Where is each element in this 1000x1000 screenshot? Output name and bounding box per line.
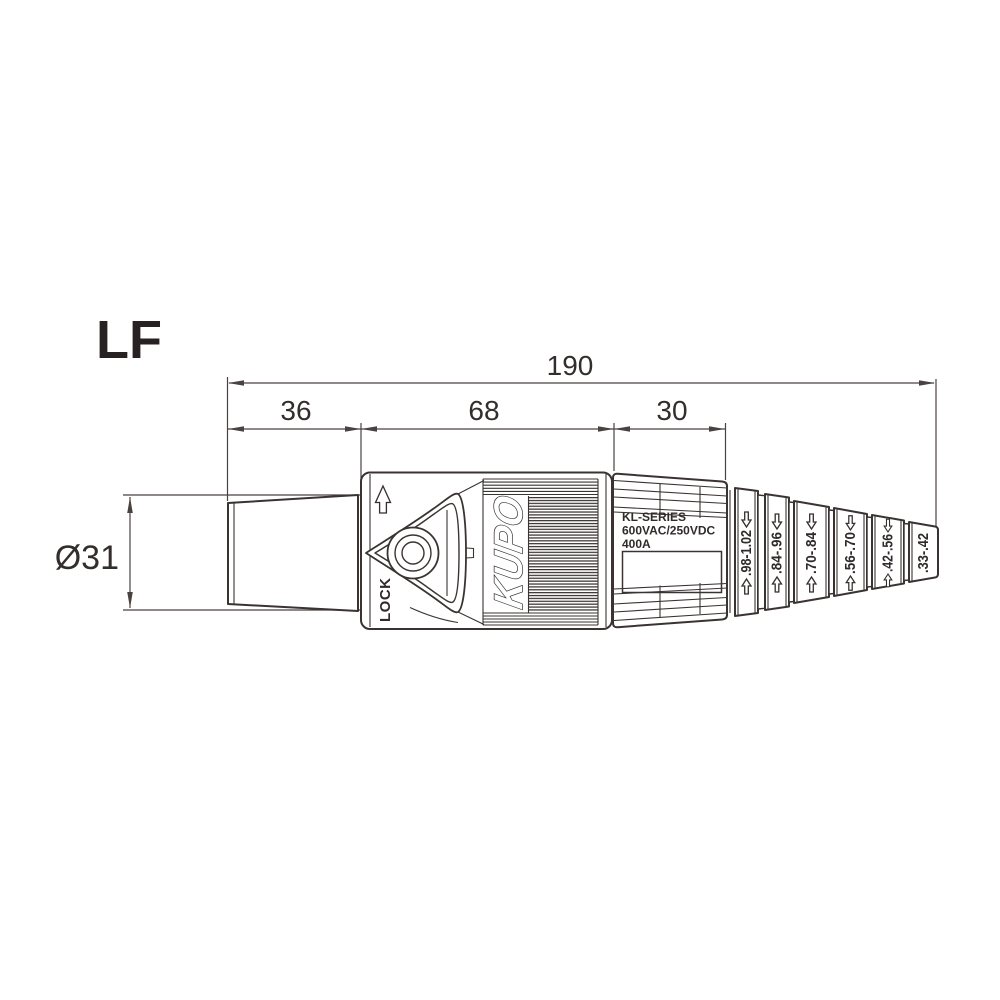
dim-arrow-icon — [598, 426, 614, 432]
dim-arrow-icon — [614, 426, 630, 432]
dim-text-body-length: 68 — [468, 395, 499, 426]
grip-section: KUPO — [483, 479, 598, 625]
gland-range-label: .42-.56 — [880, 534, 897, 572]
rear-housing-section: KL-SERIES 600VAC/250VDC 400A — [613, 474, 727, 627]
dim-text-front-length: 36 — [280, 395, 311, 426]
brand-logo-group: KUPO — [486, 492, 531, 612]
connector-dimension-drawing: LF 190 36 68 30 Ø31 — [0, 0, 1000, 1000]
main-body-section: LOCK — [361, 473, 612, 630]
gland-range-label: .33-.42 — [915, 533, 932, 573]
gland-range-label: .56-.70 — [842, 532, 859, 574]
current-label: 400A — [622, 537, 651, 551]
gland-range-label: .98-1.02 — [738, 530, 755, 576]
dim-arrow-icon — [228, 380, 244, 386]
brand-logo: KUPO — [486, 492, 531, 612]
series-label: KL-SERIES — [622, 510, 686, 524]
dim-arrow-icon — [127, 592, 133, 608]
dim-text-overall-length: 190 — [547, 350, 594, 381]
gland-range-label: .70-.84 — [803, 531, 820, 574]
dim-text-front-diameter: Ø31 — [55, 539, 119, 577]
dim-arrow-icon — [361, 426, 377, 432]
dim-arrow-icon — [919, 380, 935, 386]
lock-label: LOCK — [377, 578, 394, 623]
technical-drawing-page: LF 190 36 68 30 Ø31 — [0, 0, 1000, 1000]
dim-arrow-icon — [345, 426, 361, 432]
gland-range-label: .84-.96 — [769, 532, 786, 574]
dim-arrow-icon — [709, 426, 725, 432]
drawing-title: LF — [96, 310, 162, 370]
lock-label-group: LOCK — [377, 578, 394, 623]
grip-ribs — [529, 497, 598, 612]
dim-text-rear-length: 30 — [656, 395, 687, 426]
lock-ring-inner — [402, 542, 424, 564]
nose-outline — [228, 495, 358, 611]
voltage-label: 600VAC/250VDC — [622, 524, 715, 538]
front-nose-section — [228, 495, 358, 611]
dim-arrow-icon — [127, 497, 133, 513]
gland-ring — [758, 495, 765, 609]
cable-gland: .98-1.02 .84-.96 .70-.84 .56-.70 — [730, 488, 938, 616]
dim-arrow-icon — [228, 426, 244, 432]
